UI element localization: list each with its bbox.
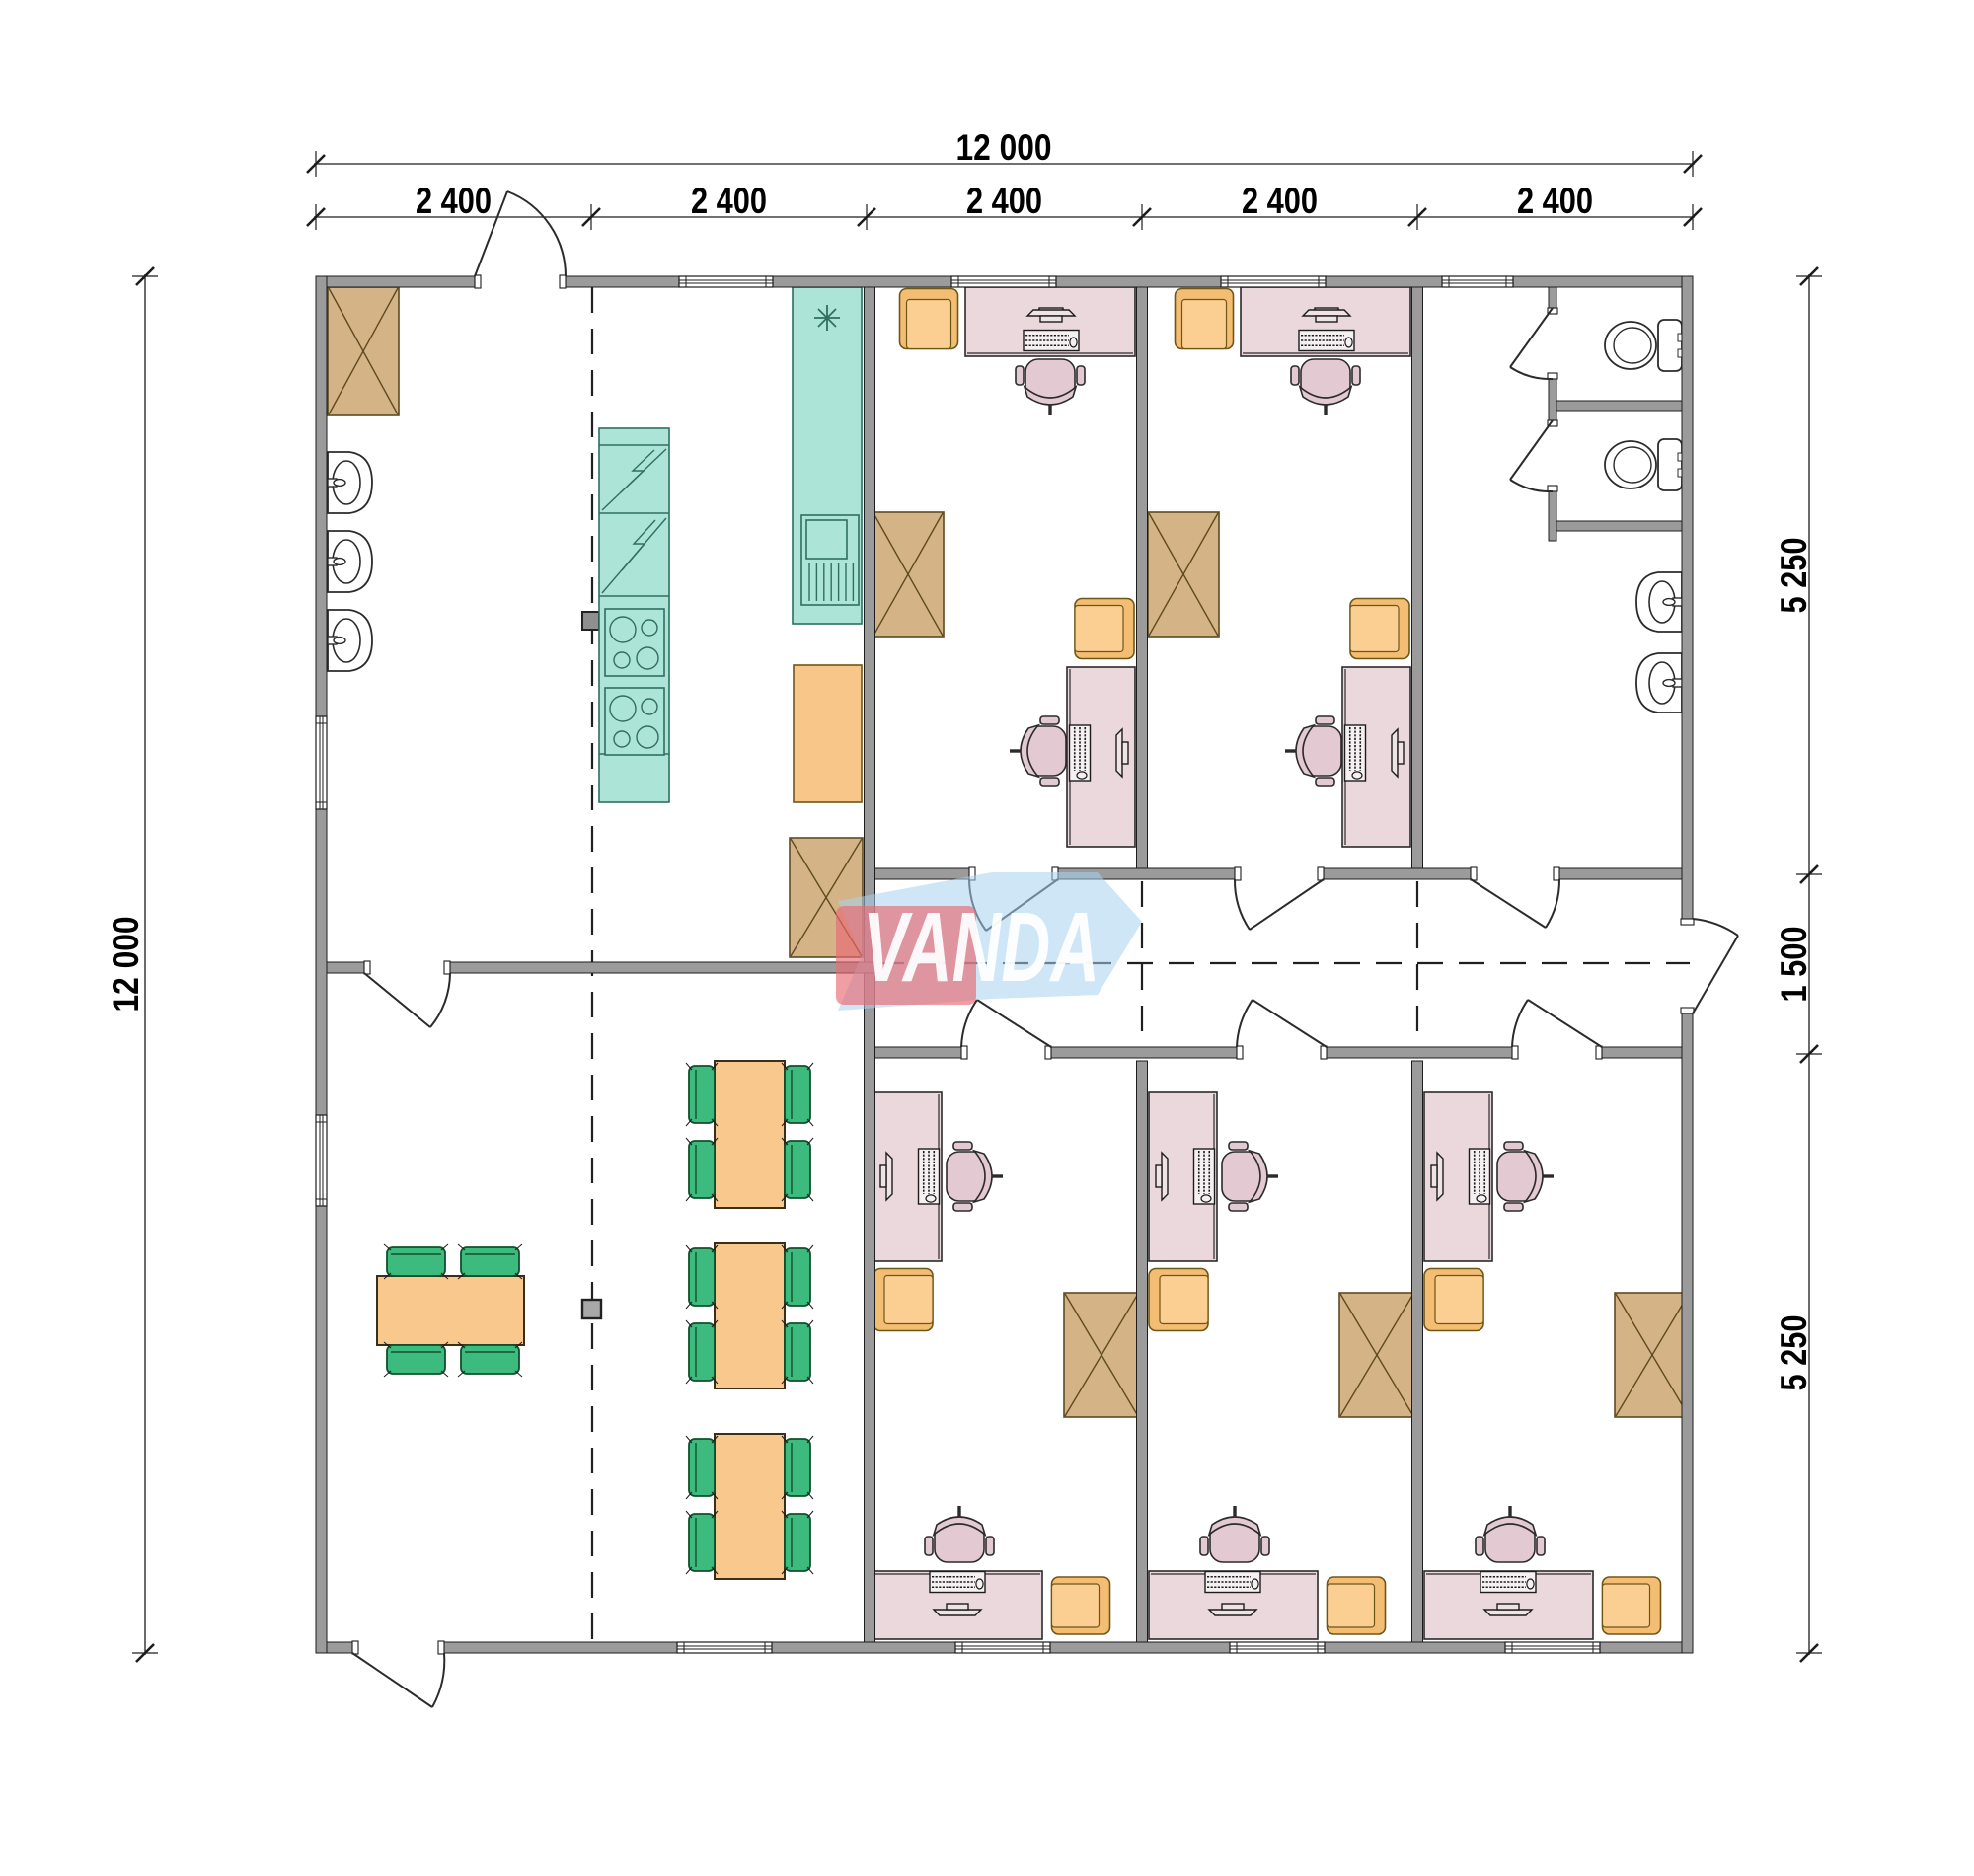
svg-text:2 400: 2 400 [1517, 181, 1593, 221]
svg-text:2 400: 2 400 [416, 181, 492, 221]
svg-text:12 000: 12 000 [956, 127, 1052, 168]
svg-text:1 500: 1 500 [1774, 927, 1814, 1003]
svg-text:5 250: 5 250 [1774, 1315, 1814, 1391]
svg-text:2 400: 2 400 [966, 181, 1042, 221]
svg-text:12 000: 12 000 [106, 917, 146, 1013]
svg-text:VANDA: VANDA [863, 892, 1100, 1003]
svg-text:2 400: 2 400 [1242, 181, 1318, 221]
svg-text:2 400: 2 400 [691, 181, 767, 221]
svg-text:5 250: 5 250 [1774, 538, 1814, 614]
